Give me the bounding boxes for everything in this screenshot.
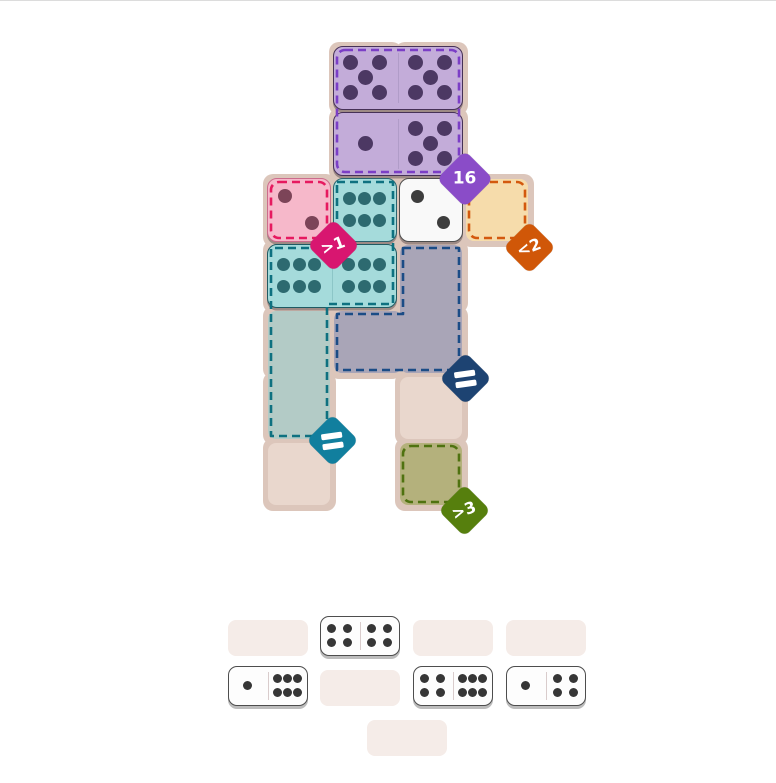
badge-content	[454, 369, 477, 387]
pip	[343, 638, 352, 647]
pip	[358, 70, 373, 85]
pip	[277, 280, 290, 293]
pip	[437, 216, 450, 229]
pip	[437, 55, 452, 70]
pip	[420, 674, 429, 683]
pip	[468, 674, 477, 683]
badge-label: >3	[450, 498, 479, 521]
pip	[437, 151, 452, 166]
pip	[243, 681, 252, 690]
badge-content: 16	[453, 170, 477, 187]
pip	[277, 258, 290, 271]
section-divider	[0, 0, 776, 1]
pip	[293, 258, 306, 271]
pip	[423, 70, 438, 85]
pip	[343, 214, 356, 227]
badge-label: 16	[453, 170, 477, 187]
pip	[553, 688, 562, 697]
pip	[283, 674, 292, 683]
badge-label: >1	[319, 233, 348, 256]
pip	[372, 85, 387, 100]
board: 16>1<2>3	[0, 0, 776, 592]
pip	[436, 674, 445, 683]
pip	[408, 151, 423, 166]
tray-slot[interactable]	[320, 670, 400, 706]
pip	[458, 674, 467, 683]
pip	[343, 55, 358, 70]
pip	[283, 688, 292, 697]
pip	[373, 192, 386, 205]
equals-bar	[454, 369, 476, 377]
tile-divider	[453, 672, 454, 700]
pip	[408, 55, 423, 70]
pip	[367, 624, 376, 633]
equals-bar	[321, 431, 343, 439]
tray-slot[interactable]	[413, 620, 493, 656]
badge-label: <2	[515, 235, 544, 258]
pip	[553, 674, 562, 683]
pip	[305, 216, 319, 230]
tile-divider	[360, 622, 361, 650]
pip	[458, 688, 467, 697]
pip	[358, 136, 373, 151]
pip	[383, 638, 392, 647]
pip	[373, 214, 386, 227]
pip	[423, 136, 438, 151]
tray-domino-4-6[interactable]	[413, 666, 493, 706]
pip	[358, 258, 371, 271]
tray-domino-1-6[interactable]	[228, 666, 308, 706]
badge-content: >1	[319, 233, 348, 256]
tile-divider	[268, 672, 269, 700]
region-cells-blue-right[interactable]	[400, 245, 462, 373]
pip	[293, 688, 302, 697]
region-cell-blue-left[interactable]	[334, 311, 402, 373]
pip	[278, 189, 292, 203]
pip	[436, 688, 445, 697]
tray-domino-1-4[interactable]	[506, 666, 586, 706]
pip	[273, 688, 282, 697]
tray-slot[interactable]	[228, 620, 308, 656]
pip	[327, 624, 336, 633]
equals-bar	[322, 441, 344, 449]
pip	[342, 280, 355, 293]
pip	[411, 190, 424, 203]
pip	[367, 638, 376, 647]
pip	[372, 55, 387, 70]
game-stage: 16>1<2>3	[0, 0, 776, 783]
tile-divider	[398, 119, 399, 169]
pip	[437, 121, 452, 136]
tray-slot[interactable]	[506, 620, 586, 656]
pip	[437, 85, 452, 100]
tile-divider	[398, 53, 399, 103]
badge-content: <2	[515, 235, 544, 258]
pip	[327, 638, 336, 647]
tile-domino-1-5[interactable]	[333, 112, 463, 176]
pip	[343, 624, 352, 633]
pip	[293, 674, 302, 683]
pip	[408, 85, 423, 100]
pip	[343, 192, 356, 205]
pip	[358, 192, 371, 205]
pip	[273, 674, 282, 683]
tile-divider	[546, 672, 547, 700]
equals-bar	[455, 379, 477, 387]
pip	[308, 258, 321, 271]
pip	[408, 121, 423, 136]
domino-tray	[0, 592, 776, 783]
pip	[383, 624, 392, 633]
pip	[569, 674, 578, 683]
pip	[478, 688, 487, 697]
pip	[569, 688, 578, 697]
pip	[358, 280, 371, 293]
pip	[343, 85, 358, 100]
pip	[478, 674, 487, 683]
pip	[373, 280, 386, 293]
pip	[468, 688, 477, 697]
pip	[521, 681, 530, 690]
badge-content	[321, 431, 344, 449]
tile-domino-5-5[interactable]	[333, 46, 463, 110]
pip	[373, 258, 386, 271]
pip	[358, 214, 371, 227]
badge-content: >3	[450, 498, 479, 521]
pip	[308, 280, 321, 293]
pip	[420, 688, 429, 697]
tray-slot[interactable]	[367, 720, 447, 756]
tray-domino-4-4[interactable]	[320, 616, 400, 656]
pip	[293, 280, 306, 293]
region-cells-teal[interactable]	[268, 311, 330, 439]
